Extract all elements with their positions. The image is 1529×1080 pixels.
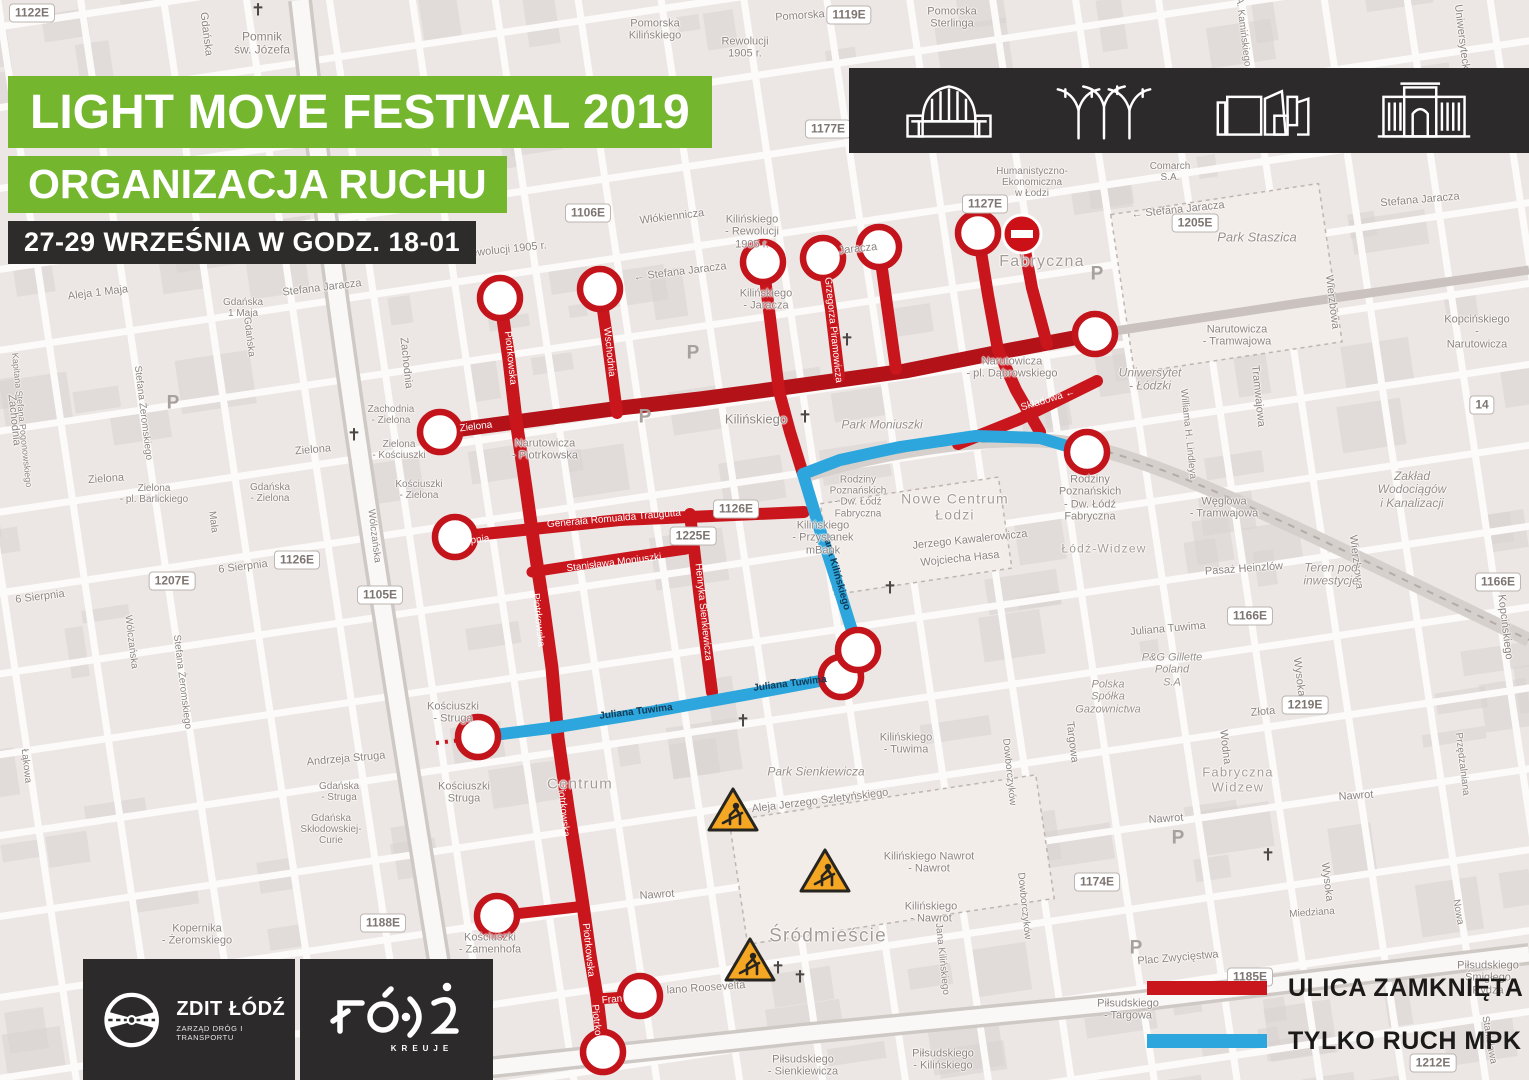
lodz-wordmark-icon: KREUJE	[300, 959, 493, 1080]
closure-point	[838, 630, 878, 670]
zdit-subtitle: ZARZĄD DRÓG I TRANSPORTU	[176, 1024, 295, 1042]
closure-point	[435, 517, 475, 557]
closure-point	[743, 242, 783, 282]
closure-point	[1075, 314, 1115, 354]
landmark-icon-bar	[849, 68, 1529, 153]
closure-point	[477, 896, 517, 936]
closure-point	[958, 213, 998, 253]
no-entry-sign	[1003, 215, 1041, 253]
closure-point	[580, 269, 620, 309]
festival-title: LIGHT MOVE FESTIVAL 2019	[30, 85, 690, 140]
zdit-name: ZDIT ŁÓDŹ	[176, 998, 295, 1021]
station-canopy-icon	[1049, 78, 1159, 144]
festival-title-banner: LIGHT MOVE FESTIVAL 2019	[8, 76, 712, 148]
legend-closed-label: ULICA ZAMKNIĘTA	[1288, 974, 1523, 1003]
closure-point	[420, 412, 460, 452]
zdit-logo: ZDIT ŁÓDŹ ZARZĄD DRÓG I TRANSPORTU	[83, 959, 295, 1080]
dates-banner: 27-29 WRZEŚNIA W GODZ. 18-01	[8, 221, 476, 264]
legend-mpk-label: TYLKO RUCH MPK	[1288, 1027, 1521, 1056]
zdit-roads-icon	[97, 983, 166, 1057]
dates-text: 27-29 WRZEŚNIA W GODZ. 18-01	[24, 227, 460, 258]
closure-point	[859, 227, 899, 267]
svg-text:KREUJE: KREUJE	[391, 1044, 453, 1053]
closure-point	[583, 1032, 623, 1072]
subtitle-text: ORGANIZACJA RUCHU	[28, 161, 487, 208]
lodz-kreuje-logo: KREUJE	[300, 959, 493, 1080]
legend-mpk-swatch	[1147, 1034, 1267, 1048]
modern-buildings-icon	[1209, 78, 1319, 144]
closure-point	[803, 238, 843, 278]
closure-point	[620, 976, 660, 1016]
closure-point	[458, 717, 498, 757]
legend-closed-swatch	[1147, 981, 1267, 995]
market-hall-icon	[899, 78, 999, 144]
closure-point	[1067, 432, 1107, 472]
subtitle-banner: ORGANIZACJA RUCHU	[8, 156, 507, 213]
traffic-map-poster: Pomnik św. JózefaGdańskaPomorska Kilińsk…	[0, 0, 1529, 1080]
palace-icon	[1369, 78, 1479, 144]
closure-point	[480, 278, 520, 318]
